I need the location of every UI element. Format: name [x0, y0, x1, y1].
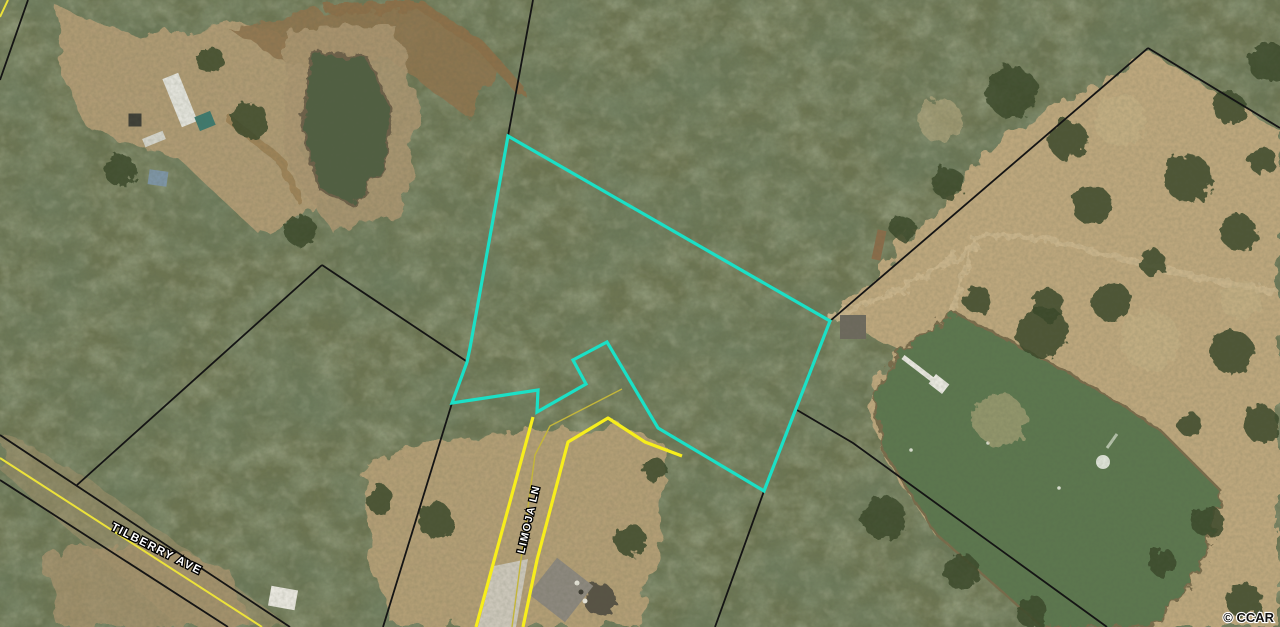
grain-texture-layer: [0, 0, 1280, 627]
copyright-watermark: © CCAR: [1223, 610, 1274, 625]
aerial-map-canvas: TILBERRY AVELIMOJA LN © CCAR: [0, 0, 1280, 627]
aerial-parcel-map: TILBERRY AVELIMOJA LN © CCAR: [0, 0, 1280, 627]
